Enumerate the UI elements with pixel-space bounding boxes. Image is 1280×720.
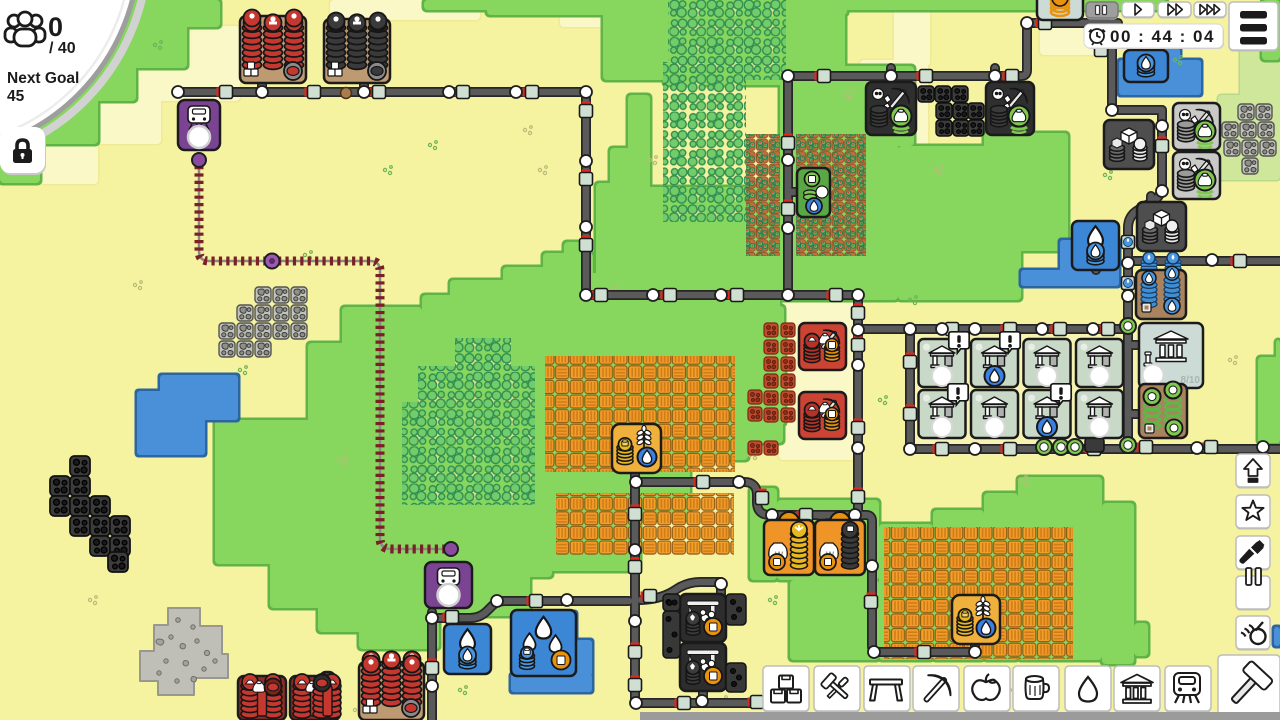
svg-text:Next Goal: Next Goal: [7, 70, 79, 87]
svg-text:0: 0: [48, 12, 63, 42]
svg-text:/ 40: / 40: [49, 40, 76, 57]
svg-text:00 : 44 : 04: 00 : 44 : 04: [1110, 27, 1215, 46]
svg-text:45: 45: [7, 88, 25, 105]
